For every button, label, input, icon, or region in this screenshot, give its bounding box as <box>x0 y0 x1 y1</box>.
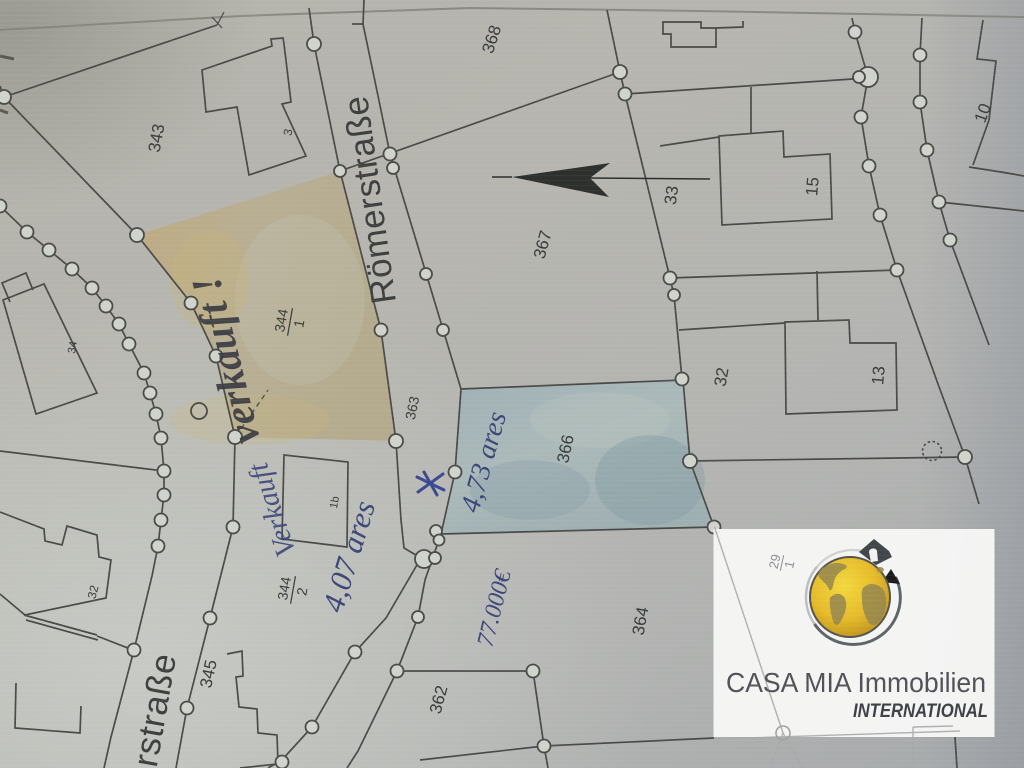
svg-text:1b: 1b <box>328 495 342 509</box>
svg-text:CASA MIA Immobilien: CASA MIA Immobilien <box>726 667 986 698</box>
svg-text:13: 13 <box>868 365 889 386</box>
svg-text:INTERNATIONAL: INTERNATIONAL <box>853 701 988 722</box>
svg-text:33: 33 <box>661 185 682 206</box>
svg-text:15: 15 <box>802 176 823 197</box>
svg-text:32: 32 <box>711 366 733 388</box>
svg-text:34: 34 <box>66 340 80 354</box>
